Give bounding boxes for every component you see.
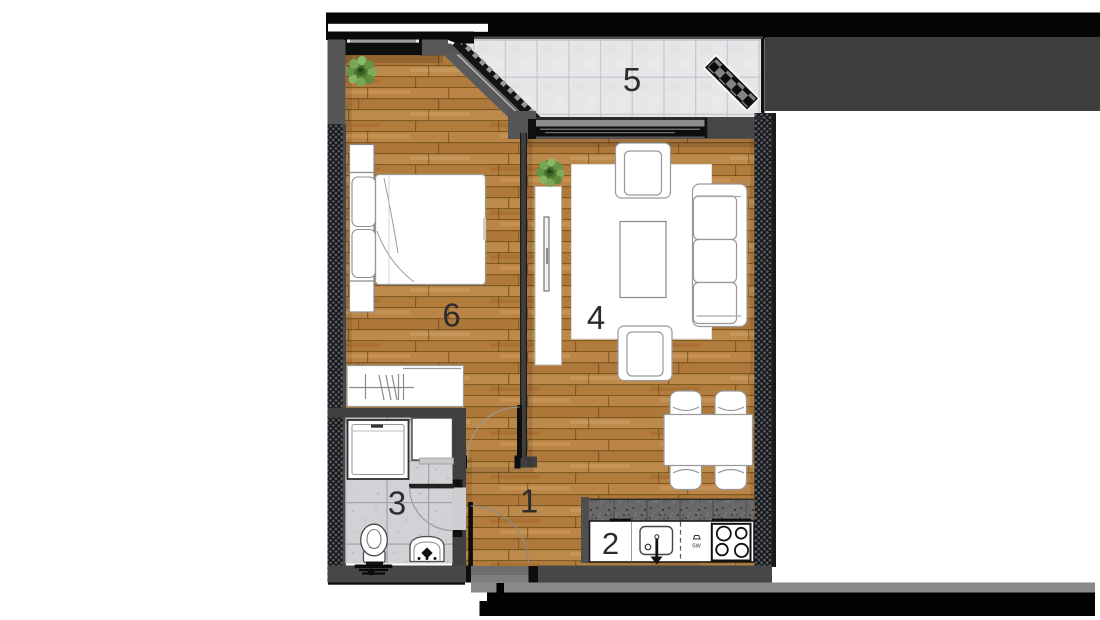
svg-text:4: 4 (587, 299, 605, 336)
svg-text:5: 5 (623, 61, 641, 98)
svg-text:2: 2 (602, 526, 619, 561)
svg-text:3: 3 (388, 485, 406, 522)
svg-text:SW: SW (692, 544, 702, 550)
svg-text:6: 6 (442, 297, 460, 334)
svg-text:1: 1 (520, 483, 538, 520)
